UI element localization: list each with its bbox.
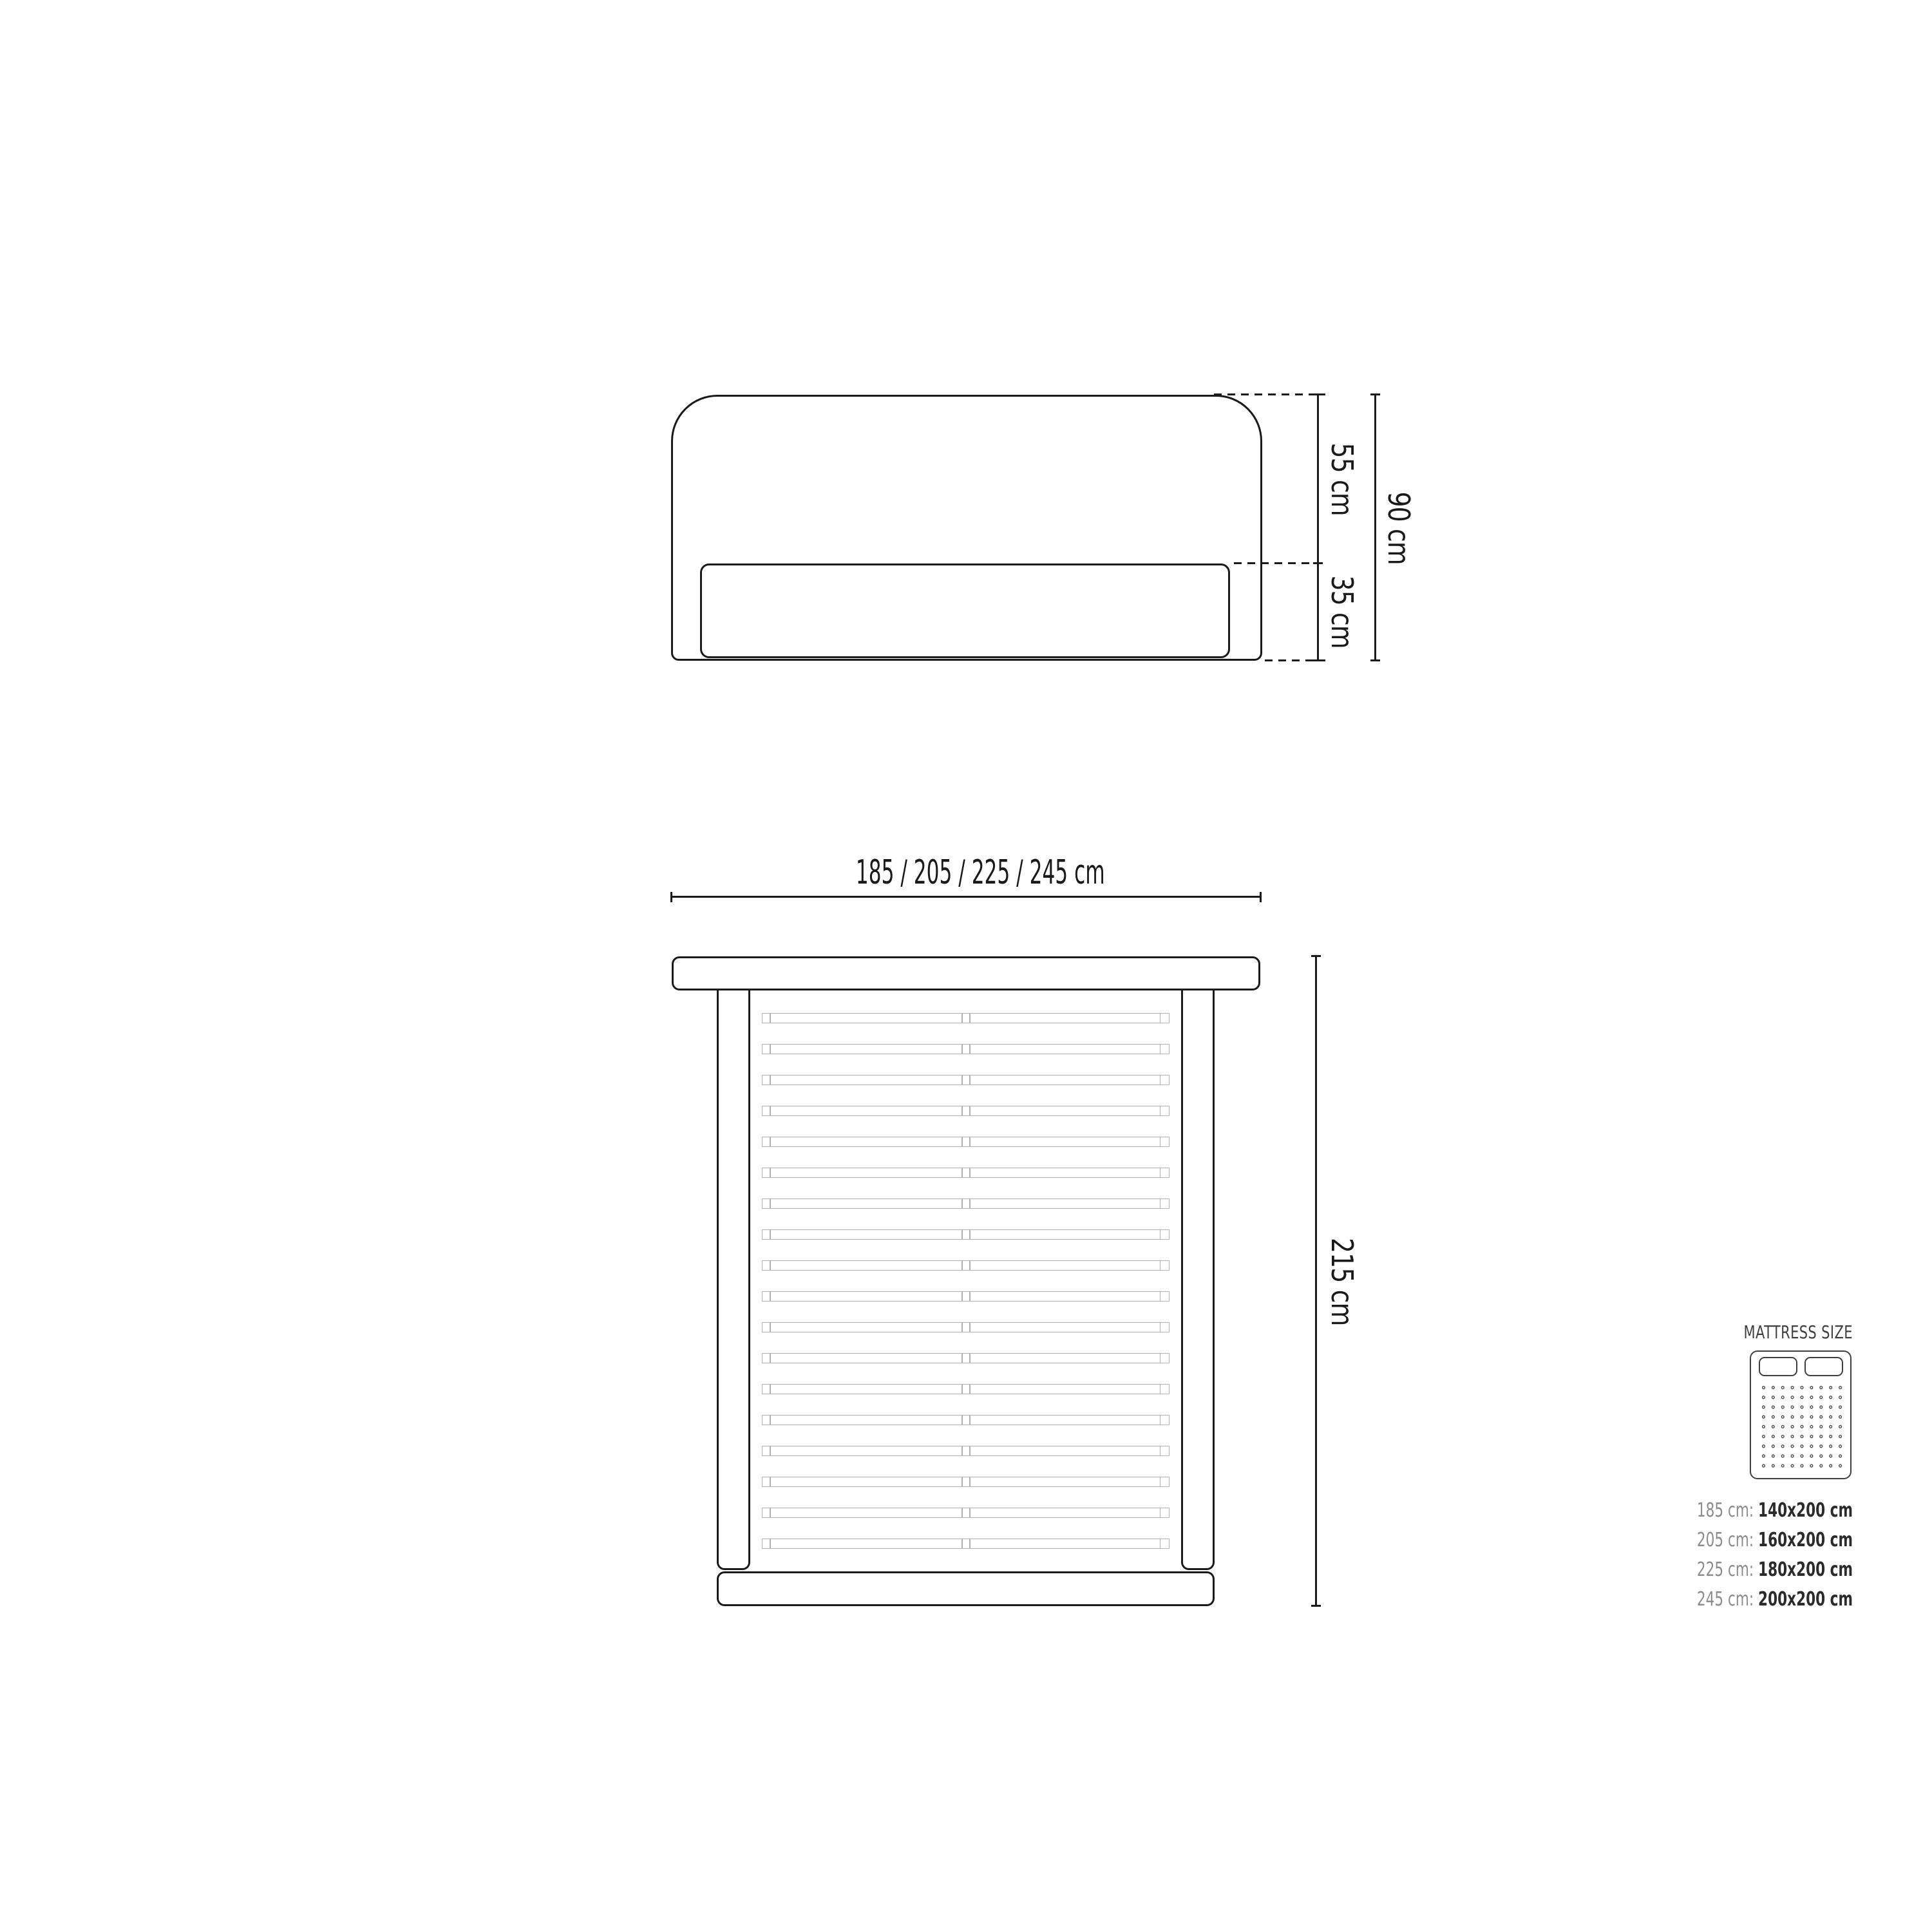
extension-line-top — [1214, 393, 1325, 395]
slat — [762, 1229, 1170, 1240]
slats — [762, 1013, 1170, 1549]
dimension-tick — [1311, 1605, 1321, 1607]
size-row: 185 cm: 140x200 cm — [1660, 1496, 1853, 1526]
mattress-icon — [1750, 1350, 1851, 1479]
length-dimension-line — [1315, 956, 1317, 1606]
mattress-dots-pattern — [1757, 1381, 1844, 1473]
bed-base-outline — [700, 563, 1230, 658]
mattress-size-title: MATTRESS SIZE — [1621, 1321, 1853, 1343]
side-rail-right — [1181, 971, 1215, 1570]
slat — [762, 1044, 1170, 1054]
size-row-bed-width: 245 cm: — [1697, 1588, 1754, 1611]
size-row-bed-width: 225 cm: — [1697, 1558, 1754, 1581]
width-dimension-line — [670, 896, 1262, 898]
slat — [762, 1013, 1170, 1023]
size-row: 225 cm: 180x200 cm — [1660, 1555, 1853, 1585]
slat — [762, 1477, 1170, 1487]
dimension-tick — [1260, 892, 1262, 902]
dimension-tick — [1370, 393, 1380, 395]
headboard-bar — [672, 956, 1260, 990]
slat — [762, 1198, 1170, 1209]
dimension-label-55cm: 55 cm — [1321, 408, 1363, 550]
slat — [762, 1075, 1170, 1085]
slat — [762, 1322, 1170, 1332]
size-row-mattress-size: 140x200 cm — [1758, 1499, 1853, 1522]
side-rail-left — [717, 971, 750, 1570]
dimension-tick — [1311, 955, 1321, 957]
dimension-tick — [670, 892, 672, 902]
dimension-label-90cm: 90 cm — [1378, 457, 1419, 599]
size-row-mattress-size: 160x200 cm — [1758, 1529, 1853, 1551]
size-row-bed-width: 205 cm: — [1697, 1529, 1754, 1551]
bed-dimension-diagram: 55 cm 35 cm 90 cm 185 / 205 / 225 / 245 … — [0, 0, 1932, 1932]
slat — [762, 1415, 1170, 1425]
slat — [762, 1508, 1170, 1518]
dimension-label-215cm: 215 cm — [1321, 1204, 1363, 1359]
dimension-line-55-35 — [1317, 395, 1319, 661]
footer-bar — [717, 1571, 1215, 1606]
slat — [762, 1106, 1170, 1116]
pillow-right-icon — [1804, 1357, 1843, 1376]
slat — [762, 1260, 1170, 1271]
slat — [762, 1384, 1170, 1394]
slat — [762, 1291, 1170, 1302]
slat — [762, 1137, 1170, 1147]
slat — [762, 1353, 1170, 1363]
dimension-label-35cm: 35 cm — [1321, 541, 1363, 683]
dimension-line-90 — [1374, 395, 1376, 661]
mattress-size-list: 185 cm: 140x200 cm 205 cm: 160x200 cm 22… — [1660, 1496, 1853, 1615]
width-dimension-label: 185 / 205 / 225 / 245 cm — [773, 853, 1159, 889]
slat — [762, 1168, 1170, 1178]
size-row-bed-width: 185 cm: — [1697, 1499, 1754, 1522]
size-row-mattress-size: 180x200 cm — [1758, 1558, 1853, 1581]
pillow-left-icon — [1759, 1357, 1797, 1376]
dimension-tick — [1370, 659, 1380, 661]
extension-line-middle — [1234, 562, 1325, 564]
size-row: 245 cm: 200x200 cm — [1660, 1585, 1853, 1615]
dimension-tick — [1313, 393, 1323, 395]
slat — [762, 1446, 1170, 1456]
size-row: 205 cm: 160x200 cm — [1660, 1526, 1853, 1555]
slat — [762, 1539, 1170, 1549]
size-row-mattress-size: 200x200 cm — [1758, 1588, 1853, 1611]
